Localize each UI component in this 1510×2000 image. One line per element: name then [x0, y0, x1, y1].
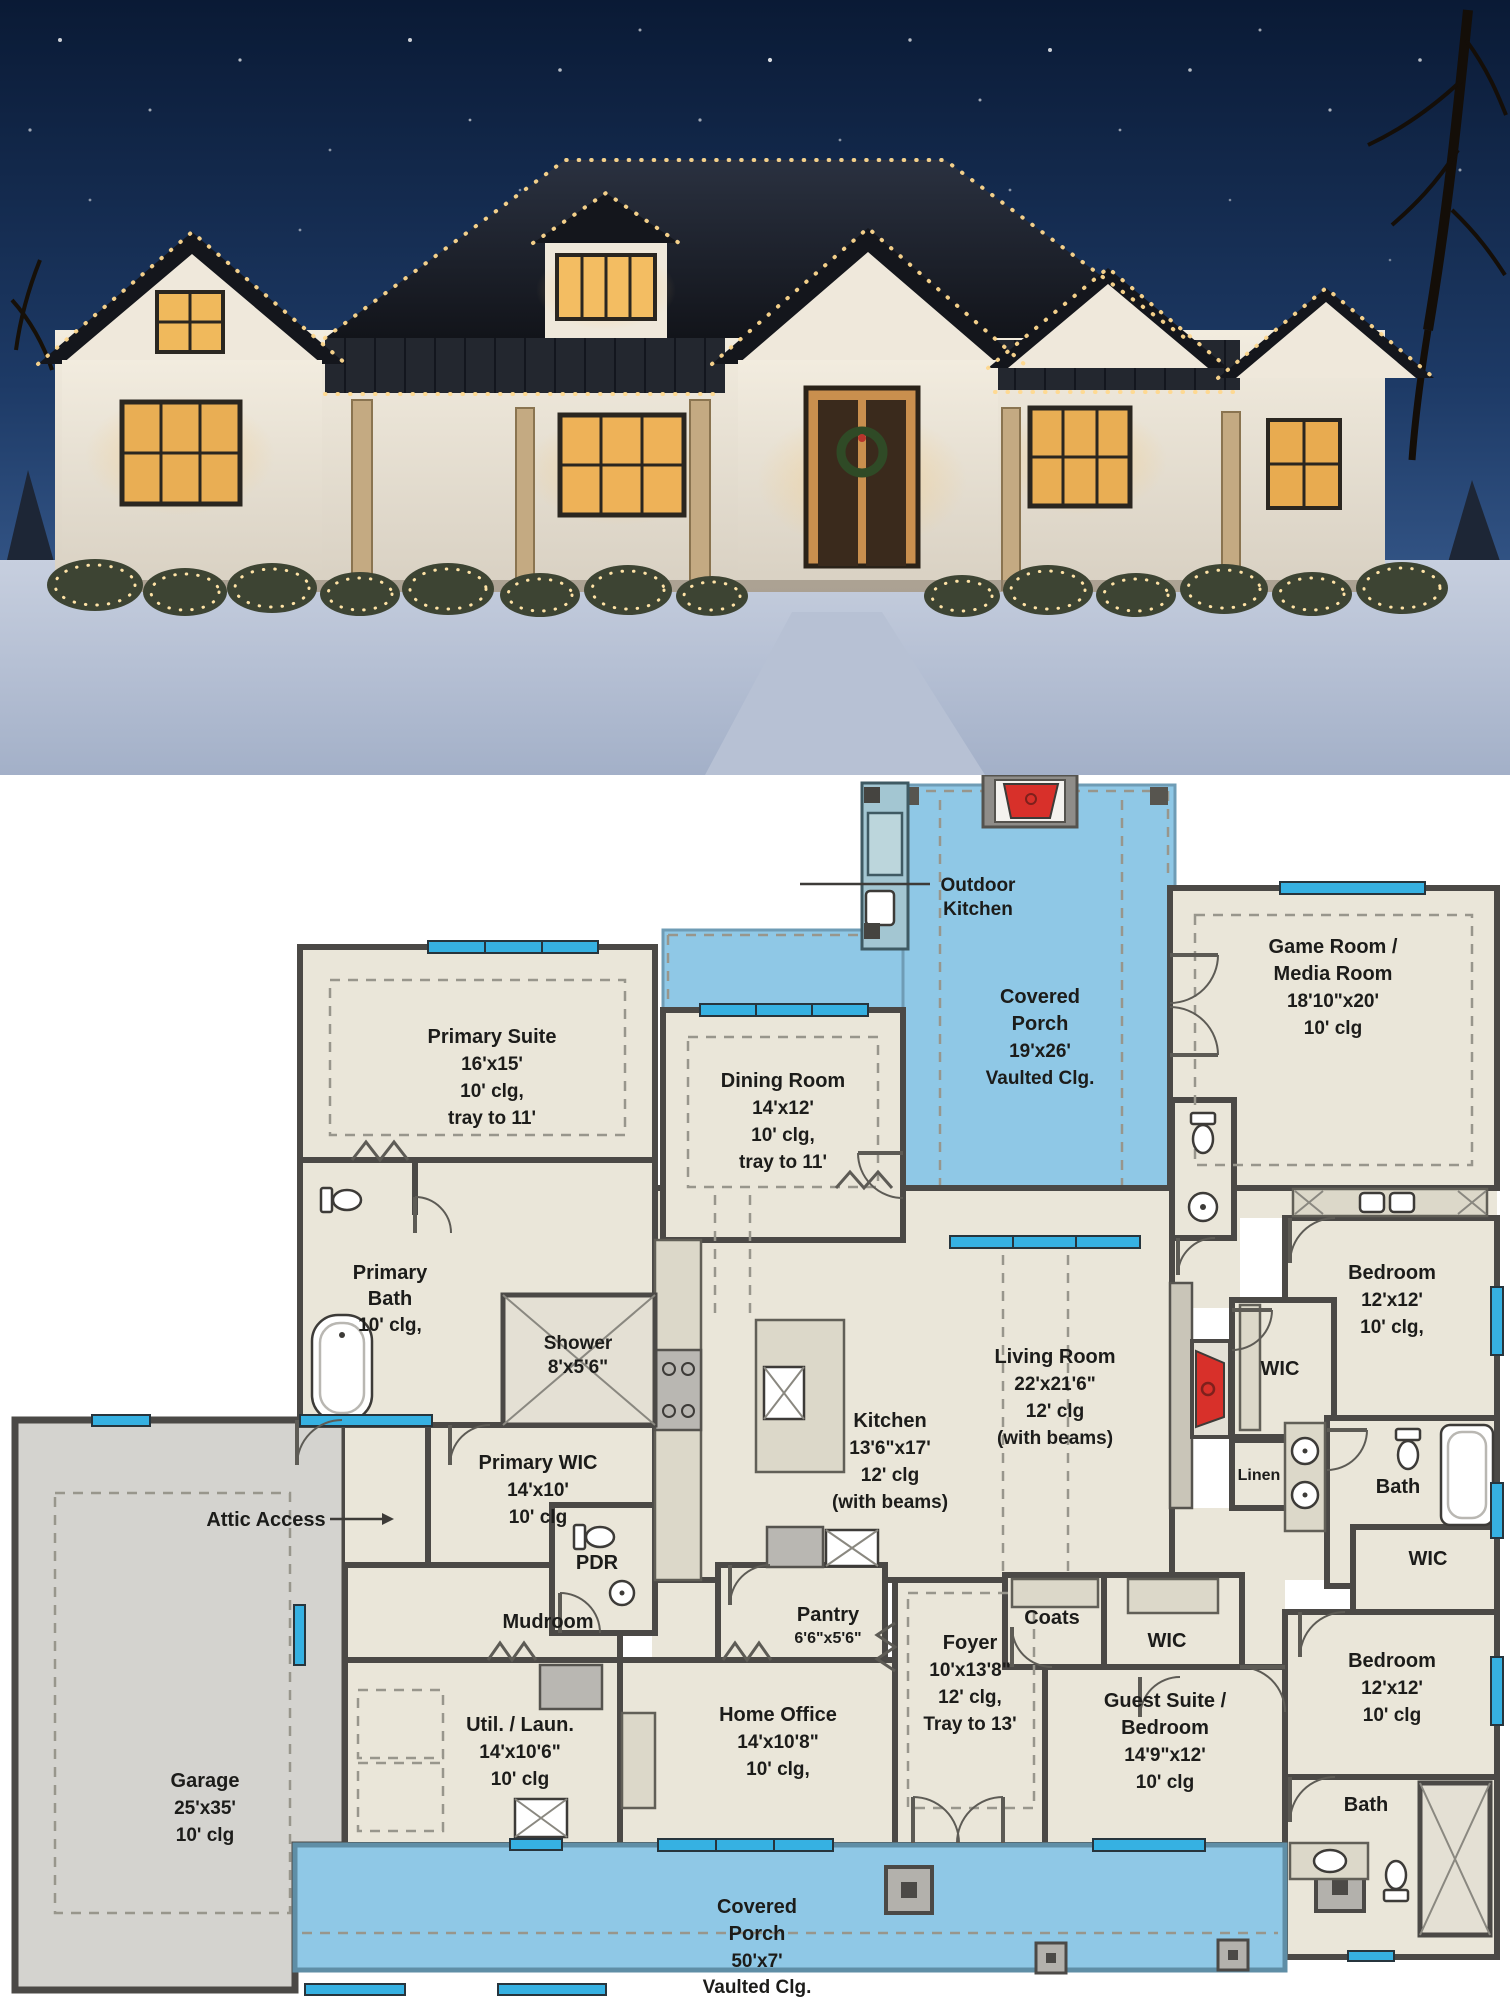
label-dining-dim: 14'x12' — [752, 1098, 814, 1119]
label-primary-wic: Primary WIC — [479, 1452, 598, 1474]
label-office-1: Home Office — [719, 1704, 837, 1726]
label-office-dim: 14'x10'8" — [737, 1732, 818, 1753]
label-rear-porch-clg: Vaulted Clg. — [986, 1068, 1095, 1089]
label-kitchen-1: Kitchen — [853, 1410, 926, 1432]
label-guest-dim: 14'9"x12' — [1124, 1745, 1205, 1766]
label-garage-clg: 10' clg — [176, 1825, 234, 1846]
label-bedroom2-clg: 10' clg — [1363, 1705, 1421, 1726]
label-primary-suite-clg: 10' clg, — [460, 1081, 524, 1102]
label-outdoor-kitchen-2: Kitchen — [943, 899, 1013, 920]
label-dining-tray: tray to 11' — [739, 1152, 827, 1173]
floor-plan: Primary Suite 16'x15' 10' clg, tray to 1… — [0, 775, 1510, 2000]
label-primary-suite-tray: tray to 11' — [448, 1108, 536, 1129]
label-util-clg: 10' clg — [491, 1769, 549, 1790]
label-kitchen-beams: (with beams) — [832, 1492, 948, 1513]
label-game-room-1: Game Room / — [1269, 936, 1398, 958]
label-mudroom: Mudroom — [502, 1611, 593, 1633]
label-living-clg: 12' clg — [1026, 1401, 1084, 1422]
front-covered-porch — [295, 1845, 1364, 1973]
label-bedroom1: Bedroom — [1348, 1262, 1436, 1284]
label-game-room-dim: 18'10"x20' — [1287, 991, 1379, 1012]
label-dining: Dining Room — [721, 1070, 845, 1092]
label-primary-bath-clg: 10' clg, — [358, 1315, 422, 1336]
label-office-clg: 10' clg, — [746, 1759, 810, 1780]
label-linen: Linen — [1238, 1467, 1281, 1484]
label-guest-clg: 10' clg — [1136, 1772, 1194, 1793]
label-foyer-dim: 10'x13'8" — [929, 1660, 1010, 1681]
label-shower: Shower — [544, 1333, 613, 1354]
label-rear-porch-2: Porch — [1012, 1013, 1069, 1035]
label-bath3: Bath — [1344, 1794, 1388, 1816]
label-guest-2: Bedroom — [1121, 1717, 1209, 1739]
label-util-dim: 14'x10'6" — [479, 1742, 560, 1763]
label-outdoor-kitchen-1: Outdoor — [941, 875, 1017, 896]
label-foyer-clg: 12' clg, — [938, 1687, 1002, 1708]
kitchen-island — [756, 1320, 844, 1472]
label-coats: Coats — [1024, 1607, 1080, 1629]
label-shower-dim: 8'x5'6" — [548, 1357, 608, 1378]
fridge-and-ovens — [767, 1527, 878, 1567]
label-primary-bath-1: Primary — [353, 1262, 428, 1284]
label-living-1: Living Room — [994, 1346, 1115, 1368]
label-game-room-clg: 10' clg — [1304, 1018, 1362, 1039]
vanity-double-sink-hall — [1293, 1189, 1487, 1216]
label-util-1: Util. / Laun. — [466, 1714, 574, 1736]
label-primary-suite: Primary Suite — [428, 1026, 557, 1048]
label-bedroom2-dim: 12'x12' — [1361, 1678, 1423, 1699]
label-primary-suite-dim: 16'x15' — [461, 1054, 523, 1075]
label-primary-bath-2: Bath — [368, 1288, 412, 1310]
label-dining-clg: 10' clg, — [751, 1125, 815, 1146]
kitchen-counter-range — [655, 1240, 701, 1580]
label-primary-wic-dim: 14'x10' — [507, 1480, 569, 1501]
grill — [983, 775, 1077, 827]
label-bedroom2: Bedroom — [1348, 1650, 1436, 1672]
label-kitchen-dim: 13'6"x17' — [849, 1438, 930, 1459]
label-living-dim: 22'x21'6" — [1014, 1374, 1095, 1395]
label-bedroom1-dim: 12'x12' — [1361, 1290, 1423, 1311]
label-rear-porch-1: Covered — [1000, 986, 1080, 1008]
label-bath2: Bath — [1376, 1476, 1420, 1498]
label-foyer-tray: Tray to 13' — [923, 1714, 1016, 1735]
label-front-porch-clg: Vaulted Clg. — [703, 1977, 812, 1998]
house-photo — [0, 0, 1510, 775]
label-front-porch-2: Porch — [729, 1923, 786, 1945]
label-wic2: WIC — [1409, 1548, 1448, 1570]
label-garage-dim: 25'x35' — [174, 1798, 236, 1819]
label-guest-1: Guest Suite / — [1104, 1690, 1227, 1712]
label-pdr: PDR — [576, 1552, 619, 1574]
label-bedroom1-clg: 10' clg, — [1360, 1317, 1424, 1338]
label-garage: Garage — [171, 1770, 240, 1792]
label-foyer: Foyer — [943, 1632, 998, 1654]
label-wic1: WIC — [1261, 1358, 1300, 1380]
media-wall-fireplace — [1170, 1283, 1230, 1508]
label-wic3: WIC — [1148, 1630, 1187, 1652]
outdoor-kitchen-counter — [862, 783, 908, 949]
label-attic-access: Attic Access — [206, 1509, 325, 1531]
label-kitchen-clg: 12' clg — [861, 1465, 919, 1486]
label-pantry-dim: 6'6"x5'6" — [794, 1630, 861, 1647]
label-living-beams: (with beams) — [997, 1428, 1113, 1449]
label-game-room-2: Media Room — [1274, 963, 1393, 985]
house-plan-listing: Primary Suite 16'x15' 10' clg, tray to 1… — [0, 0, 1510, 2000]
label-rear-porch-dim: 19'x26' — [1009, 1041, 1071, 1062]
label-pantry: Pantry — [797, 1604, 860, 1626]
label-front-porch-1: Covered — [717, 1896, 797, 1918]
label-primary-wic-clg: 10' clg — [509, 1507, 567, 1528]
label-front-porch-dim: 50'x7' — [731, 1951, 782, 1972]
